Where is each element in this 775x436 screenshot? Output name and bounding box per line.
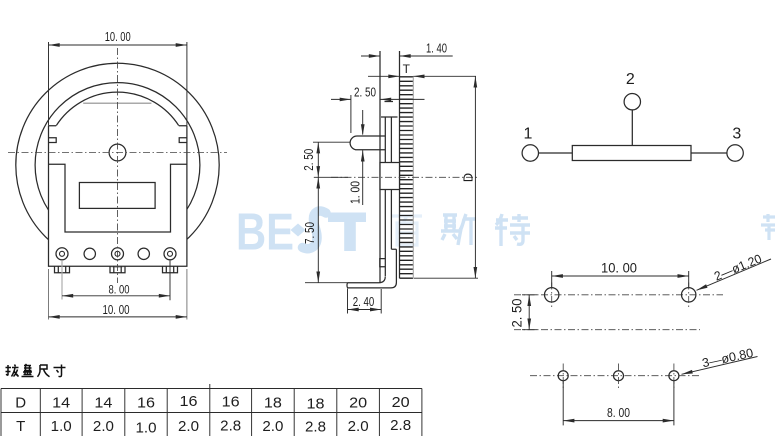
svg-text:2. 50: 2. 50 xyxy=(510,299,525,328)
svg-text:7. 50: 7. 50 xyxy=(303,222,317,244)
svg-text:16: 16 xyxy=(180,393,198,410)
svg-text:1.0: 1.0 xyxy=(136,420,157,436)
svg-text:2.8: 2.8 xyxy=(220,418,241,435)
svg-text:3: 3 xyxy=(732,126,741,143)
svg-text:8. 00: 8. 00 xyxy=(109,282,130,296)
svg-text:2.0: 2.0 xyxy=(348,418,369,435)
svg-text:2. 50: 2. 50 xyxy=(302,149,316,171)
svg-text:D: D xyxy=(15,395,26,412)
svg-text:16: 16 xyxy=(222,394,240,411)
svg-text:18: 18 xyxy=(264,395,282,412)
svg-text:10. 00: 10. 00 xyxy=(601,259,637,275)
svg-text:2—ø1.20: 2—ø1.20 xyxy=(712,252,764,284)
svg-text:14: 14 xyxy=(52,395,70,412)
svg-text:1. 00: 1. 00 xyxy=(349,181,363,204)
svg-text:20: 20 xyxy=(349,395,367,412)
svg-text:2. 40: 2. 40 xyxy=(353,295,375,309)
svg-text:BE: BE xyxy=(236,204,294,262)
svg-text:20: 20 xyxy=(392,394,410,411)
svg-text:2.8: 2.8 xyxy=(305,419,326,436)
svg-text:10. 00: 10. 00 xyxy=(105,29,131,44)
svg-text:2.0: 2.0 xyxy=(178,418,199,435)
svg-text:18: 18 xyxy=(307,396,325,413)
svg-text:14: 14 xyxy=(94,395,112,412)
svg-text:1. 40: 1. 40 xyxy=(426,42,447,56)
svg-text:2: 2 xyxy=(626,71,635,88)
svg-text:T: T xyxy=(16,418,25,435)
svg-text:2.0: 2.0 xyxy=(262,418,283,435)
svg-text:3—ø0.80: 3—ø0.80 xyxy=(701,346,755,371)
svg-text:1: 1 xyxy=(524,126,533,143)
svg-text:2.0: 2.0 xyxy=(93,418,114,435)
svg-text:T: T xyxy=(403,62,411,76)
svg-text:2. 50: 2. 50 xyxy=(354,85,376,99)
svg-text:1.0: 1.0 xyxy=(51,418,72,435)
svg-text:10. 00: 10. 00 xyxy=(103,302,130,317)
svg-text:D: D xyxy=(461,173,476,182)
svg-text:8. 00: 8. 00 xyxy=(607,406,630,420)
svg-text:16: 16 xyxy=(137,395,155,412)
svg-text:2.8: 2.8 xyxy=(390,417,411,434)
